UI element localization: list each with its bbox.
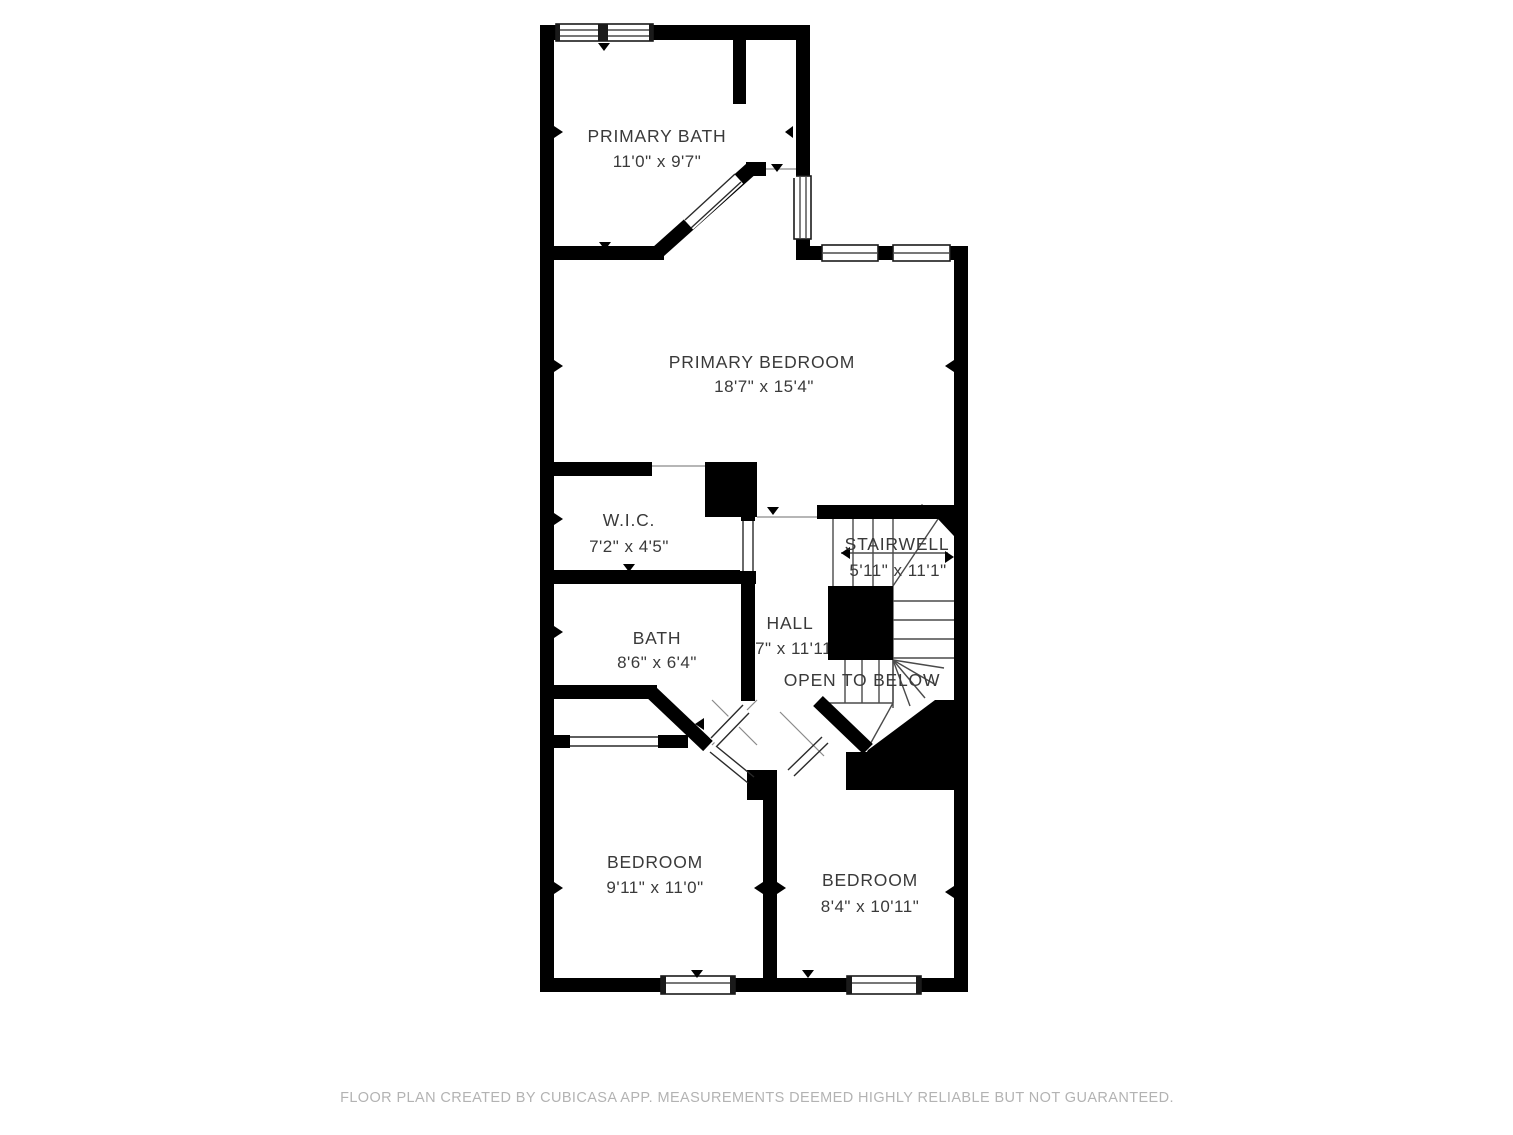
open-to-below-name: OPEN TO BELOW xyxy=(784,670,941,690)
floor-plan-drawing: HALL 4'7" x 11'11" xyxy=(0,0,1513,1135)
hall-name: HALL xyxy=(767,613,814,633)
stairwell-dimensions: 5'11" x 11'1" xyxy=(849,561,946,580)
hall-dimensions: 4'7" x 11'11" xyxy=(741,639,838,658)
stairwell-name: STAIRWELL xyxy=(845,534,950,554)
bedroom-left-name: BEDROOM xyxy=(607,852,703,872)
bath-name: BATH xyxy=(633,628,682,648)
wic-name: W.I.C. xyxy=(603,510,655,530)
footer-disclaimer: FLOOR PLAN CREATED BY CUBICASA APP. MEAS… xyxy=(340,1090,1174,1106)
wic-dimensions: 7'2" x 4'5" xyxy=(589,537,669,556)
primary-bedroom-name: PRIMARY BEDROOM xyxy=(669,352,855,372)
room-label-open-to-below: OPEN TO BELOW xyxy=(784,670,941,690)
bedroom-left-dimensions: 9'11" x 11'0" xyxy=(606,878,703,897)
floor-plan-page: HALL 4'7" x 11'11" xyxy=(0,0,1513,1135)
primary-bath-dimensions: 11'0" x 9'7" xyxy=(613,152,702,171)
bath-dimensions: 8'6" x 6'4" xyxy=(617,653,697,672)
bedroom-right-dimensions: 8'4" x 10'11" xyxy=(821,897,919,916)
primary-bedroom-dimensions: 18'7" x 15'4" xyxy=(714,377,814,396)
primary-bath-name: PRIMARY BATH xyxy=(588,126,727,146)
bedroom-right-name: BEDROOM xyxy=(822,870,918,890)
